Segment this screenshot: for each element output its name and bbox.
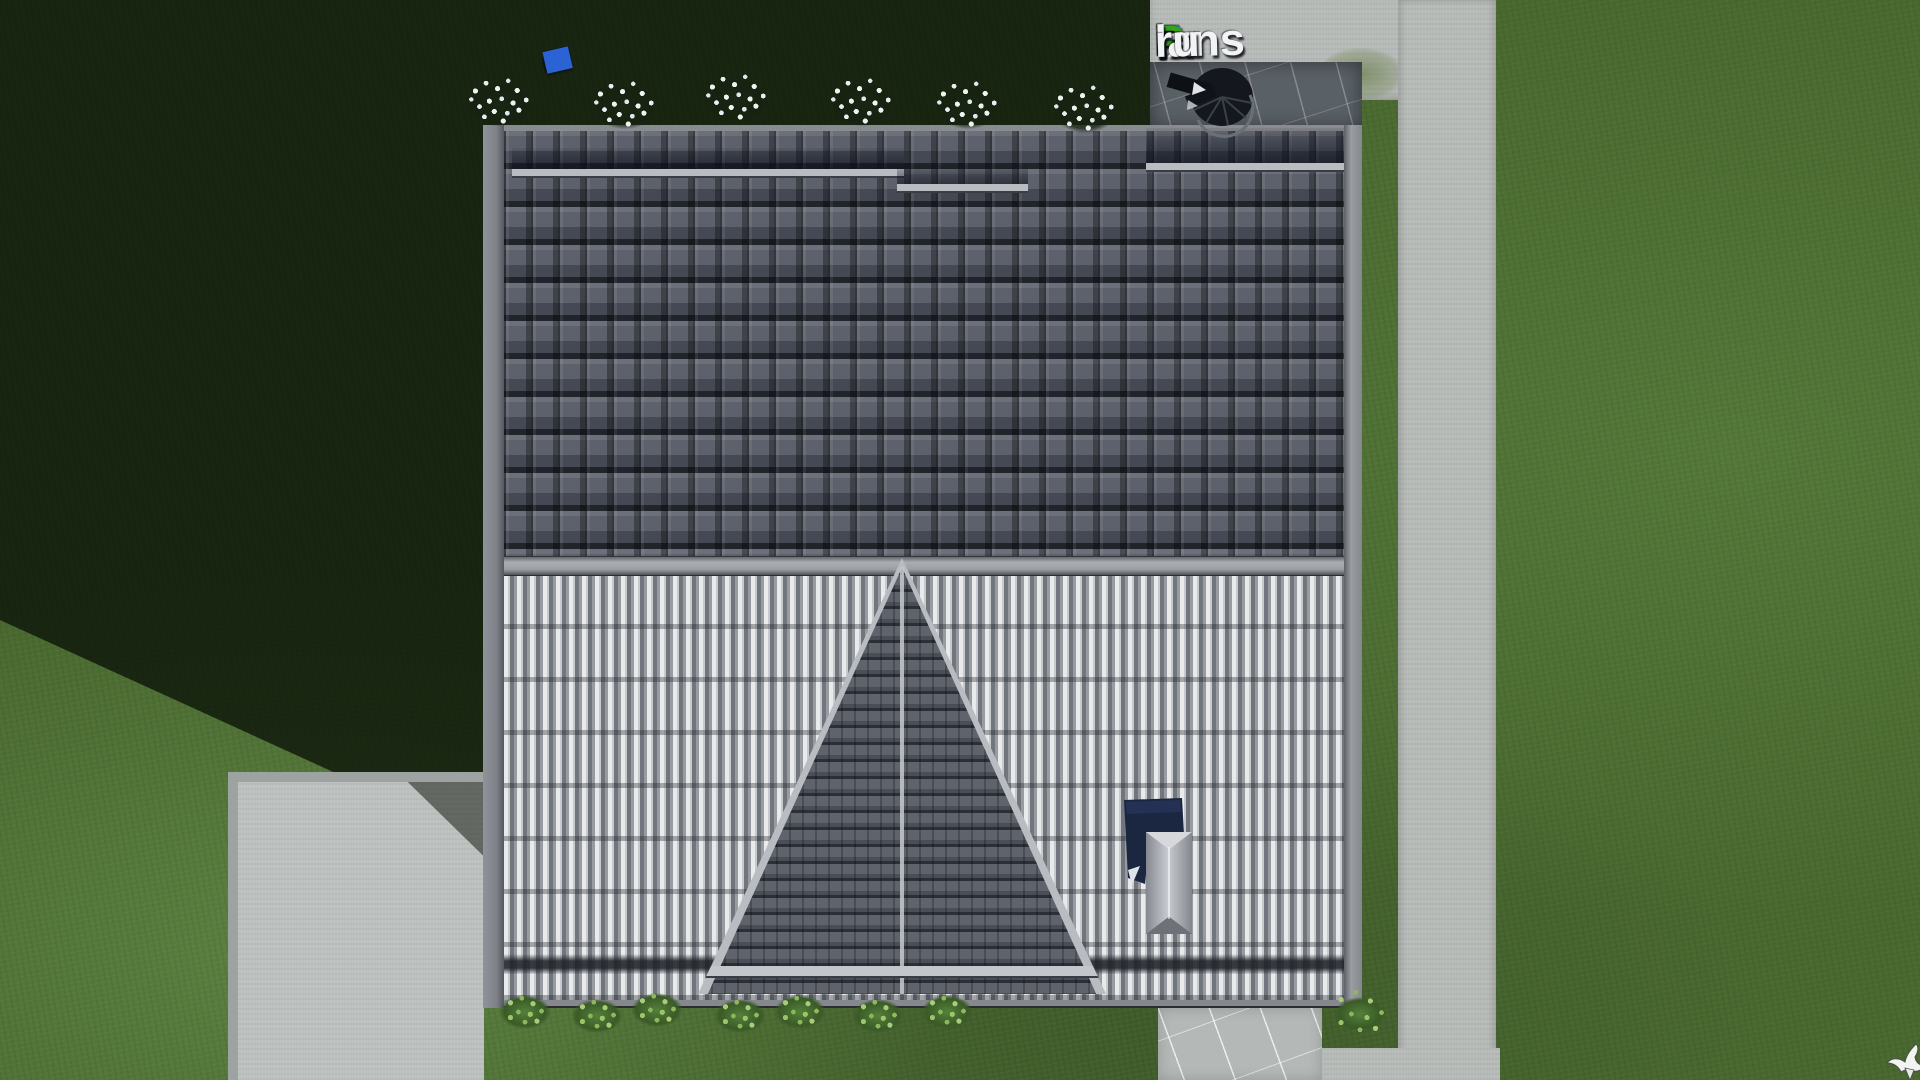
flower-bush [459,73,541,133]
vegetation-layer [0,0,1920,1080]
flower-bush [696,69,778,129]
green-bush [564,993,630,1039]
flower-bush [584,76,666,136]
white-bird [1886,1042,1920,1080]
green-bush [624,987,690,1033]
green-bush [767,989,833,1035]
flower-bush [927,76,1009,136]
green-bush [914,989,980,1035]
green-bush [845,993,911,1039]
green-bush [492,989,558,1035]
green-bush [707,993,773,1039]
render-canvas: FixPlans.ru [0,0,1920,1080]
logo-letter: ru [1154,15,1200,68]
flower-bush [1044,80,1126,140]
flower-bush [821,73,903,133]
green-bush [1317,978,1403,1050]
